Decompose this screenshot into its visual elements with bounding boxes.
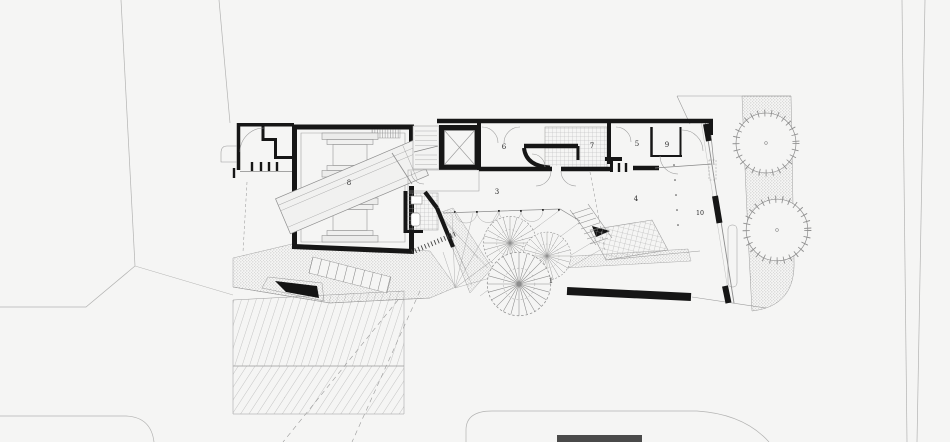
- property-line-left-2: [219, 0, 230, 123]
- tree-icon: [746, 199, 808, 261]
- plaza: [233, 244, 456, 303]
- curb-corner-link: [135, 266, 233, 295]
- island-marking-bar: [557, 435, 642, 442]
- road-edge-right-2: [917, 0, 925, 442]
- left-annex: [221, 123, 294, 252]
- room-label-1: 1: [549, 277, 553, 285]
- sink-icon: [411, 196, 422, 204]
- garden-boundary-wall: [567, 291, 691, 297]
- road-hatch-area: [233, 291, 420, 442]
- room-label-5: 5: [635, 140, 639, 148]
- room-label-7: 7: [590, 142, 594, 150]
- room-label-2: 2: [447, 233, 451, 241]
- room-label-4: 4: [634, 195, 639, 203]
- bench-outline: [728, 225, 737, 287]
- floor-plan-page: 1 2 3 4 5 6 7 8 9 10: [0, 0, 950, 442]
- right-strip: [677, 96, 808, 311]
- elevator: [439, 125, 480, 170]
- tree-icon: [736, 113, 796, 173]
- curb-bottom-left: [0, 416, 154, 442]
- stair-block: [413, 126, 439, 169]
- rooms-bar: [437, 121, 714, 250]
- curb-top-left: [0, 266, 135, 307]
- room-label-6: 6: [502, 143, 507, 151]
- toilet-icon: [411, 213, 420, 226]
- property-line-left: [121, 0, 135, 266]
- tree-icon: [487, 252, 550, 315]
- room-label-9: 9: [665, 141, 669, 149]
- room-label-8: 8: [347, 179, 351, 187]
- road-edge-right-1: [902, 0, 907, 442]
- floor-plan-drawing: 1 2 3 4 5 6 7 8 9 10: [0, 0, 950, 442]
- room-label-3: 3: [495, 188, 499, 196]
- room-label-10: 10: [696, 210, 704, 217]
- door-opening: [552, 166, 561, 173]
